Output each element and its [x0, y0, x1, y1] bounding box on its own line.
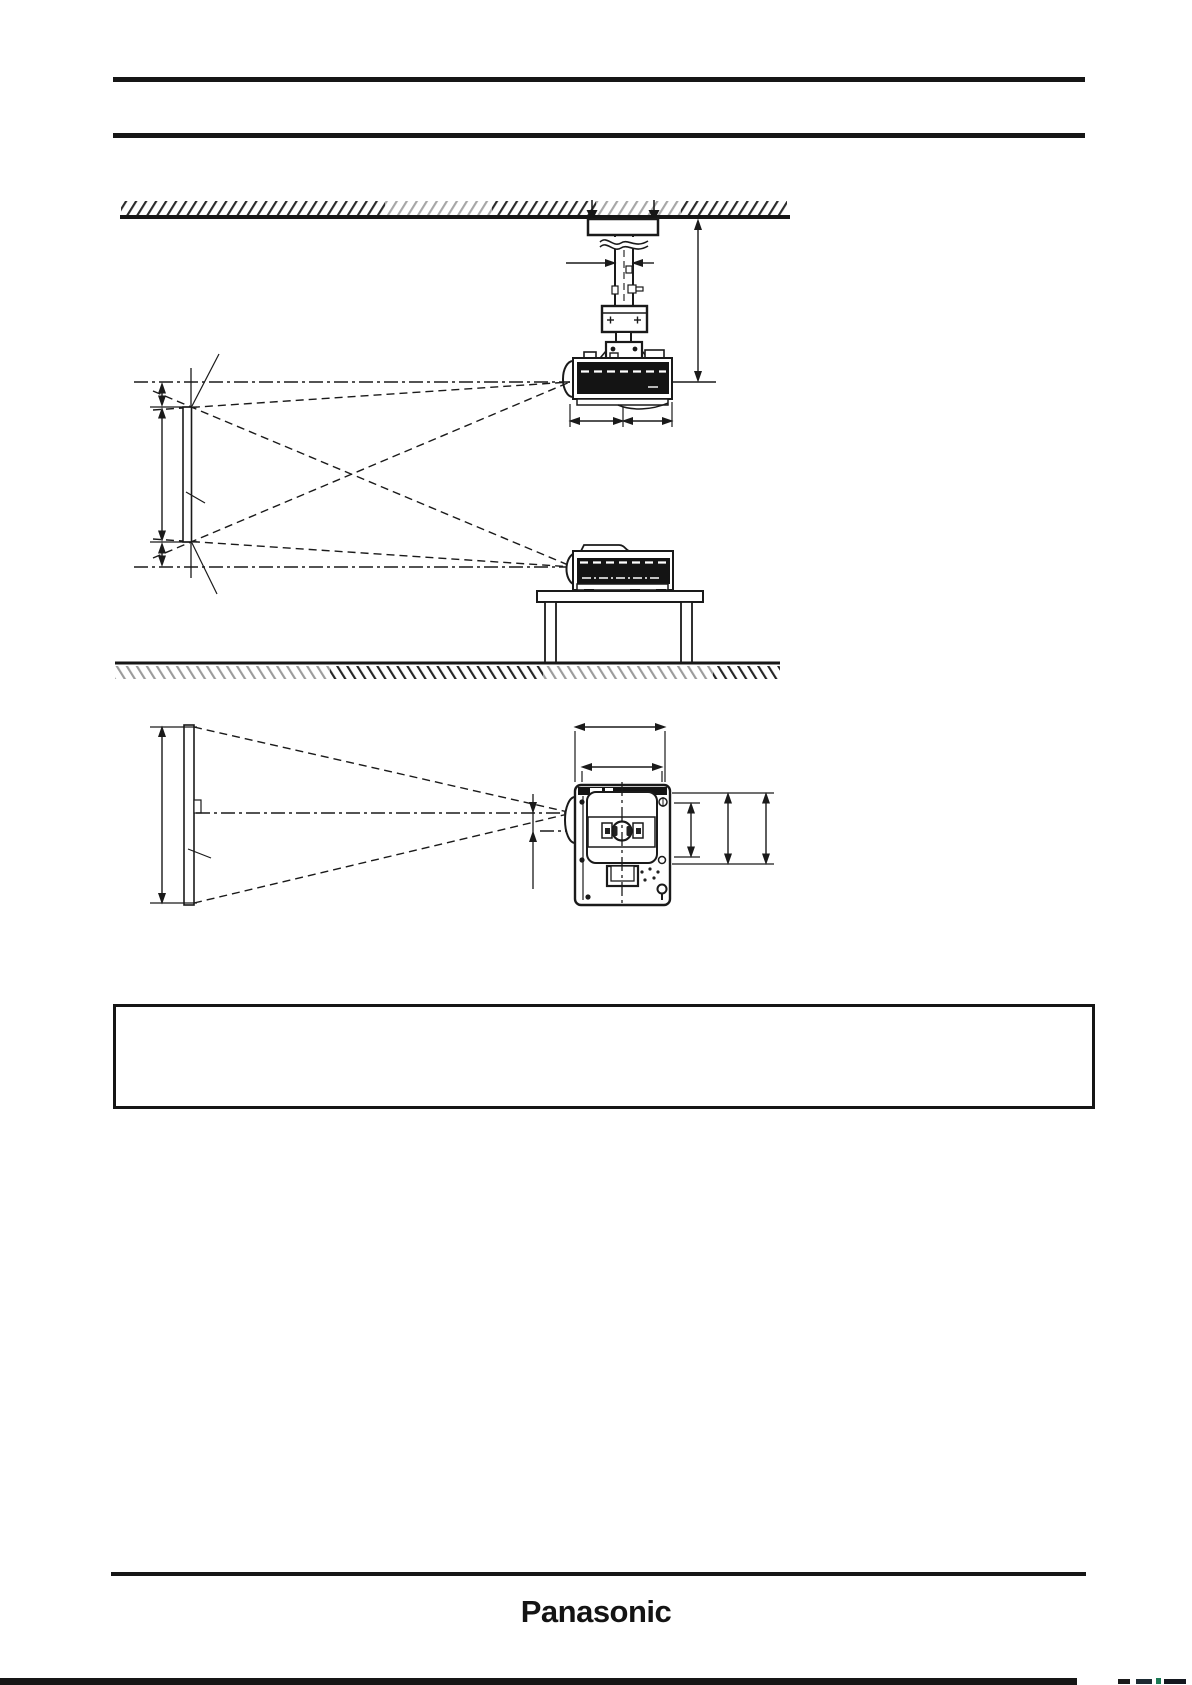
top-view-diagram	[150, 724, 774, 907]
scan-noise	[1156, 1678, 1161, 1684]
ceiling-projector-lens	[563, 361, 573, 397]
screen-top-view	[184, 725, 211, 905]
scan-noise	[1136, 1679, 1152, 1684]
dimension-body-width	[575, 724, 665, 782]
table	[537, 591, 703, 663]
top-view-lens	[565, 797, 575, 843]
scan-noise	[1118, 1679, 1130, 1684]
document-page: Panasonic	[0, 0, 1192, 1685]
dimension-ceiling-to-axis	[672, 220, 716, 382]
screen-side-view	[183, 354, 219, 594]
side-view-diagram	[115, 200, 790, 679]
table-projector	[566, 545, 673, 593]
note-box	[113, 1004, 1095, 1109]
ceiling-projector	[563, 358, 672, 409]
ceiling-mount-bracket	[584, 219, 664, 363]
dimension-axis-offset	[530, 794, 537, 889]
projection-lines	[153, 382, 573, 567]
projector-top-view	[565, 782, 670, 907]
floor	[115, 663, 780, 679]
footer-rule	[111, 1572, 1086, 1576]
dimension-body-depth	[672, 793, 774, 864]
note-box-text	[116, 1007, 1092, 1027]
ceiling	[120, 201, 790, 217]
page-bottom-edge	[0, 1678, 1077, 1685]
scan-noise	[1164, 1679, 1186, 1684]
panasonic-logo: Panasonic	[0, 1594, 1192, 1630]
installation-diagram	[0, 0, 1192, 1685]
dimension-pole-width	[566, 260, 654, 267]
